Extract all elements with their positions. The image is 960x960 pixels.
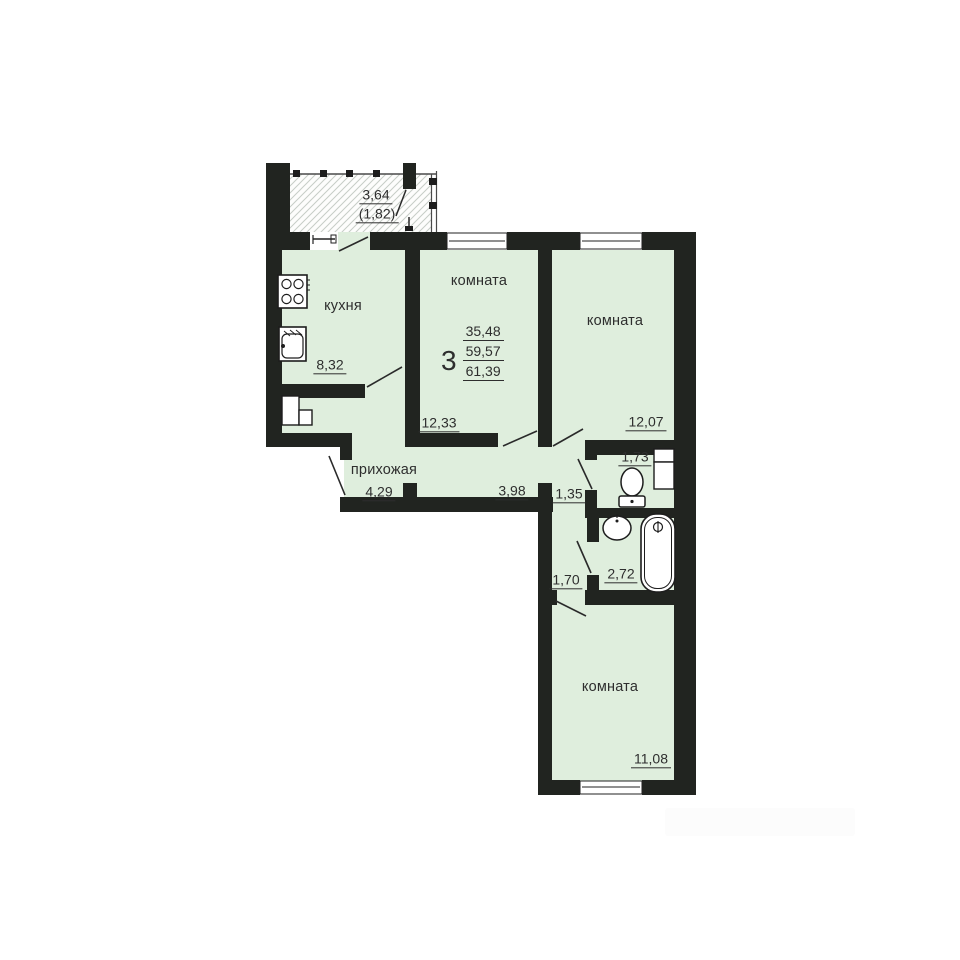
wc-area-label: 1,73 <box>618 449 651 466</box>
bath-area-label: 2,72 <box>604 566 637 583</box>
wall-bath-left-upper <box>587 518 599 542</box>
wall-nook-bottom <box>266 433 352 447</box>
door-entrance <box>329 456 345 495</box>
window-kitchen <box>310 232 338 250</box>
sink-icon <box>279 327 306 361</box>
corridor-135-label: 1,35 <box>552 486 585 503</box>
wall-rooms-divider <box>538 232 552 447</box>
wall-hallway-stub <box>403 483 417 512</box>
wall-kitchen-bottom <box>266 384 365 398</box>
kitchen-area-label: 8,32 <box>313 357 346 374</box>
balcony-pier-wall <box>403 163 416 189</box>
balcony-area-label: 3,64 <box>359 187 392 204</box>
balcony-door-opening <box>338 232 370 250</box>
watermark <box>665 808 855 836</box>
room-mid-area-label: 12,33 <box>418 415 459 432</box>
window-room-right <box>580 233 642 249</box>
balcony-area-reduced-label: (1,82) <box>356 206 399 223</box>
room-right-label: комната <box>587 314 643 330</box>
hallway-label: прихожая <box>351 463 417 479</box>
room-mid-label: комната <box>451 274 507 290</box>
apartment-summary: 3 35,48 59,57 61,39 <box>441 323 504 383</box>
wall-entrance-stub <box>340 433 352 460</box>
wall-wc-left-upper <box>585 440 597 460</box>
kitchen-label: кухня <box>324 299 362 315</box>
window-room-bottom <box>580 781 642 794</box>
room-bottom-label: комната <box>582 680 638 696</box>
room-bottom-area-label: 11,08 <box>631 751 671 768</box>
wall-top-a <box>266 232 310 250</box>
wall-bottom-left <box>538 780 580 795</box>
wall-central-stub <box>538 483 552 512</box>
toilet-icon <box>619 468 645 507</box>
living-area: 35,48 <box>463 323 504 341</box>
cabinet-icon <box>654 449 674 489</box>
wall-bath-left-lower <box>587 575 599 592</box>
stove-icon <box>278 275 310 308</box>
wall-room-mid-bottom <box>412 433 498 447</box>
bathtub-icon <box>641 514 675 592</box>
wall-right-outer <box>674 232 696 795</box>
room-right-area-label: 12,07 <box>625 414 666 431</box>
wall-left-pier <box>266 163 290 232</box>
rooms-count: 3 <box>441 345 457 377</box>
hallway-area-label: 4,29 <box>362 484 395 501</box>
wall-bottom-right <box>642 780 696 795</box>
wall-room-bottom-top-stub <box>538 590 557 605</box>
floorplan-canvas: 3,64 (1,82) кухня 8,32 комната 12,33 3 3… <box>0 0 960 960</box>
total-area-with-balcony: 61,39 <box>463 363 504 381</box>
total-area: 59,57 <box>463 343 504 361</box>
wall-lower-left <box>538 512 552 795</box>
corridor-170-label: 1,70 <box>549 572 582 589</box>
window-room-mid <box>447 233 507 249</box>
corridor-398-label: 3,98 <box>495 483 528 500</box>
